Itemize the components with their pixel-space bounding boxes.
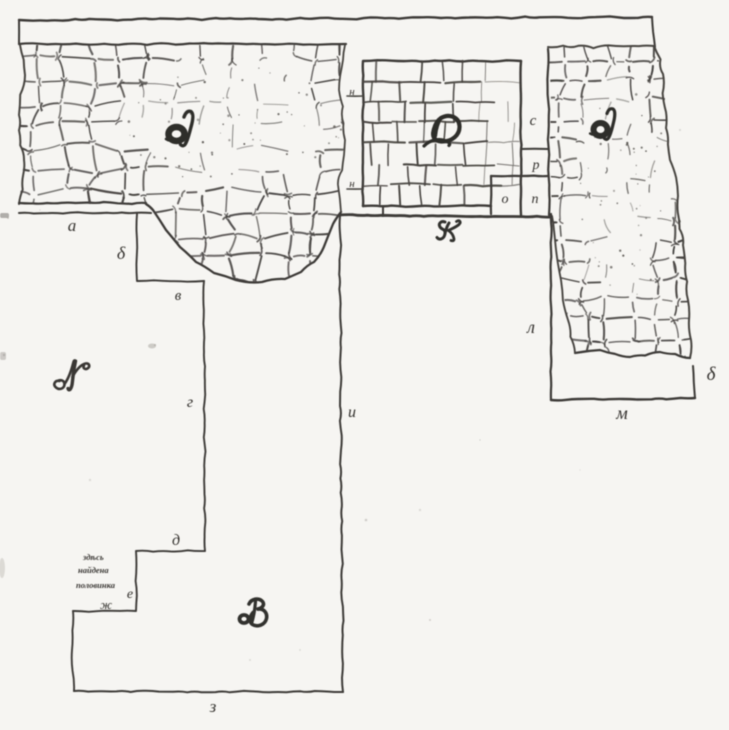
- svg-text:здѣсь: здѣсь: [82, 552, 104, 562]
- svg-text:о: о: [502, 192, 509, 207]
- svg-text:п: п: [532, 192, 539, 207]
- svg-text:δ: δ: [117, 243, 126, 263]
- svg-text:г: г: [187, 394, 193, 411]
- svg-text:ж: ж: [100, 597, 112, 612]
- svg-text:а: а: [68, 216, 77, 235]
- svg-text:и: и: [348, 404, 356, 421]
- svg-text:найдена: найдена: [78, 565, 109, 575]
- svg-text:р: р: [532, 158, 540, 173]
- svg-text:δ: δ: [707, 364, 717, 385]
- svg-text:з: з: [209, 697, 217, 716]
- svg-text:в: в: [175, 288, 182, 304]
- svg-text:м: м: [615, 403, 628, 423]
- svg-text:с: с: [530, 113, 537, 129]
- svg-text:д: д: [172, 532, 180, 549]
- svg-text:половинка: половинка: [76, 580, 116, 590]
- svg-text:н: н: [349, 86, 355, 98]
- svg-text:л: л: [526, 317, 535, 337]
- svg-text:е: е: [127, 587, 133, 602]
- svg-text:н: н: [349, 178, 355, 190]
